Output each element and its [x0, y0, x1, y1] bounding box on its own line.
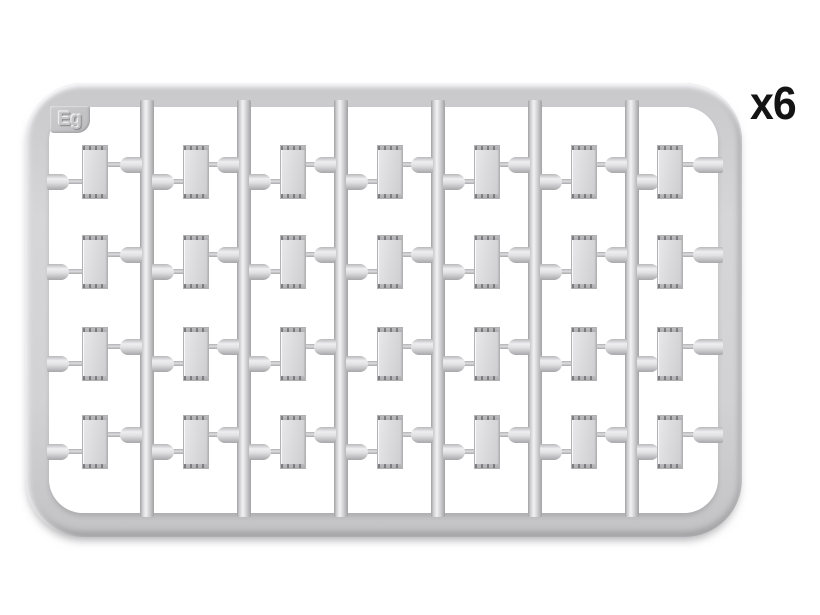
sprue-part [280, 415, 306, 469]
gate-capsule [411, 157, 433, 173]
sprue-part [82, 145, 108, 199]
gate-capsule [508, 339, 530, 355]
gate-capsule [693, 339, 723, 355]
sprue-part [474, 415, 500, 469]
gate-capsule [443, 174, 465, 190]
gate-capsule [217, 157, 239, 173]
gate-capsule [217, 247, 239, 263]
gate-capsule [249, 356, 271, 372]
gate-capsule [346, 356, 368, 372]
gate-capsule [217, 427, 239, 443]
sprue-part [82, 415, 108, 469]
gate-capsule [605, 339, 627, 355]
gate-capsule [540, 356, 562, 372]
sprue-part [474, 327, 500, 381]
sprue-part [571, 415, 597, 469]
gate-capsule [411, 339, 433, 355]
gate-capsule [47, 356, 69, 372]
gate-capsule [411, 427, 433, 443]
gate-capsule [540, 174, 562, 190]
gate-capsule [47, 174, 69, 190]
sprue-part [82, 235, 108, 289]
gate-capsule [605, 247, 627, 263]
sprue-part [183, 415, 209, 469]
sprue-part [377, 145, 403, 199]
sprue-part [183, 327, 209, 381]
gate-capsule [443, 444, 465, 460]
gate-capsule [314, 157, 336, 173]
gate-capsule [314, 339, 336, 355]
sprue-part [657, 145, 683, 199]
gate-capsule [637, 264, 659, 280]
sprue-part [474, 235, 500, 289]
gate-capsule [540, 444, 562, 460]
gate-capsule [152, 356, 174, 372]
sprue-part [280, 145, 306, 199]
sprue-part [657, 327, 683, 381]
sprue-part [183, 145, 209, 199]
gate-capsule [443, 356, 465, 372]
gate-capsule [47, 444, 69, 460]
sprue-part [377, 327, 403, 381]
gate-capsule [314, 427, 336, 443]
sprue-part [474, 145, 500, 199]
sprue-part [657, 415, 683, 469]
gate-capsule [443, 264, 465, 280]
sprue-part [377, 415, 403, 469]
sprue-part [571, 145, 597, 199]
sprue-code-tab: Eg [50, 106, 90, 133]
gate-capsule [540, 264, 562, 280]
gate-capsule [693, 247, 723, 263]
gate-capsule [605, 157, 627, 173]
gate-capsule [249, 174, 271, 190]
gate-capsule [47, 264, 69, 280]
gate-capsule [152, 264, 174, 280]
gate-capsule [346, 174, 368, 190]
gate-capsule [508, 247, 530, 263]
gate-capsule [120, 157, 142, 173]
sprue-part [82, 327, 108, 381]
gate-capsule [346, 444, 368, 460]
gate-capsule [152, 174, 174, 190]
gate-capsule [693, 157, 723, 173]
gate-capsule [508, 157, 530, 173]
sprue-part [571, 235, 597, 289]
gate-capsule [120, 339, 142, 355]
sprue-part [183, 235, 209, 289]
gate-capsule [693, 427, 723, 443]
gate-capsule [314, 247, 336, 263]
gate-capsule [120, 247, 142, 263]
gate-capsule [637, 356, 659, 372]
sprue-code-label: Eg [58, 110, 82, 129]
sprue-part [377, 235, 403, 289]
gate-capsule [249, 264, 271, 280]
sprue-part [657, 235, 683, 289]
gate-capsule [249, 444, 271, 460]
sprue-part [280, 327, 306, 381]
gate-capsule [120, 427, 142, 443]
gate-capsule [152, 444, 174, 460]
gate-capsule [346, 264, 368, 280]
sprue-part [571, 327, 597, 381]
sprue-part [280, 235, 306, 289]
gate-capsule [411, 247, 433, 263]
gate-capsule [217, 339, 239, 355]
gate-capsule [637, 444, 659, 460]
gate-capsule [637, 174, 659, 190]
gate-capsule [508, 427, 530, 443]
sprue-diagram: Eg x6 [0, 0, 820, 615]
quantity-label: x6 [750, 80, 796, 126]
gate-capsule [605, 427, 627, 443]
